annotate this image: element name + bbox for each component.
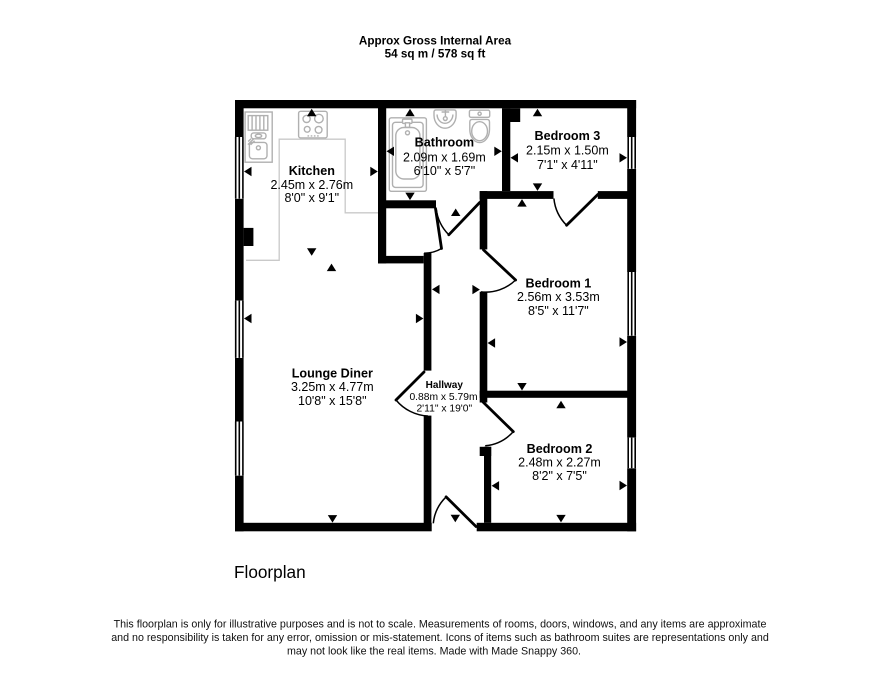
svg-text:6'10" x 5'7": 6'10" x 5'7" xyxy=(414,164,476,178)
svg-text:2.45m x 2.76m: 2.45m x 2.76m xyxy=(270,178,353,192)
svg-text:and no responsibility is taken: and no responsibility is taken for any e… xyxy=(111,632,769,644)
svg-text:Approx Gross Internal Area: Approx Gross Internal Area xyxy=(359,34,512,47)
svg-text:8'2" x 7'5": 8'2" x 7'5" xyxy=(532,469,587,483)
svg-text:Hallway: Hallway xyxy=(426,380,464,391)
svg-text:54 sq m / 578 sq ft: 54 sq m / 578 sq ft xyxy=(385,47,486,60)
svg-text:2.48m x 2.27m: 2.48m x 2.27m xyxy=(518,455,601,469)
svg-text:Bathroom: Bathroom xyxy=(415,135,474,149)
svg-text:This floorplan is only for ill: This floorplan is only for illustrative … xyxy=(114,619,767,631)
svg-text:Kitchen: Kitchen xyxy=(289,164,335,178)
svg-text:10'8" x 15'8": 10'8" x 15'8" xyxy=(298,394,367,408)
svg-text:2'11" x 19'0": 2'11" x 19'0" xyxy=(416,404,472,415)
svg-text:2.09m x 1.69m: 2.09m x 1.69m xyxy=(403,151,486,165)
svg-text:8'0" x 9'1": 8'0" x 9'1" xyxy=(284,191,339,205)
svg-text:3.25m x 4.77m: 3.25m x 4.77m xyxy=(291,380,374,394)
svg-text:Bedroom 2: Bedroom 2 xyxy=(527,442,593,456)
svg-text:2.56m x 3.53m: 2.56m x 3.53m xyxy=(517,290,600,304)
svg-text:2.15m x 1.50m: 2.15m x 1.50m xyxy=(526,143,609,157)
svg-text:7'1" x 4'11": 7'1" x 4'11" xyxy=(537,158,598,172)
svg-text:Floorplan: Floorplan xyxy=(234,562,306,582)
svg-text:8'5" x 11'7": 8'5" x 11'7" xyxy=(528,304,589,318)
svg-text:Lounge Diner: Lounge Diner xyxy=(292,366,373,380)
svg-text:0.88m x 5.79m: 0.88m x 5.79m xyxy=(409,392,477,403)
svg-text:may not look like the real ite: may not look like the real items. Made w… xyxy=(287,645,581,657)
svg-text:Bedroom 3: Bedroom 3 xyxy=(535,129,601,143)
svg-text:Bedroom 1: Bedroom 1 xyxy=(526,277,592,291)
